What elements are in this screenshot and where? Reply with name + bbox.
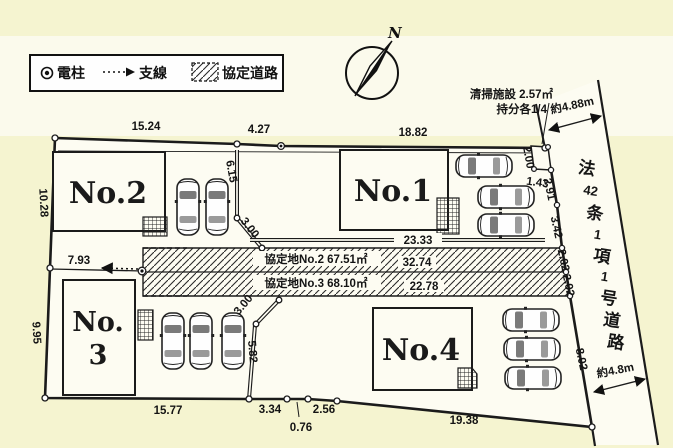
- lot-label-no4: No.4: [382, 333, 460, 368]
- legend: 電柱 支線 協定道路: [30, 55, 283, 91]
- dim-bottom-334: 3.34: [259, 404, 282, 416]
- lot-label-no3-top: No.: [72, 307, 124, 338]
- road-char: 42: [582, 182, 599, 199]
- dim-no1-south: 23.33: [404, 235, 433, 247]
- dim-left-upper: 10.28: [36, 188, 50, 218]
- lot-label-no2: No.2: [69, 176, 147, 211]
- porch-no3-icon: [138, 310, 153, 340]
- car-icon: [456, 153, 512, 179]
- dim-bottom-no4: 19.38: [450, 415, 479, 427]
- car-icon: [478, 212, 534, 238]
- car-icon: [504, 336, 560, 362]
- dim-bottom-076: 0.76: [290, 422, 312, 434]
- legend-pole-label: 電柱: [57, 65, 85, 81]
- legend-wire-label: 支線: [138, 65, 167, 81]
- porch-no4-icon: [458, 368, 477, 388]
- agreement-road-legend-icon: [192, 63, 218, 81]
- porch-no1-icon: [437, 198, 459, 234]
- dim-no4-east: 5.82: [245, 340, 259, 363]
- car-icon: [478, 184, 534, 210]
- car-icon: [175, 179, 201, 235]
- agreement-row2-label: 協定地No.3 68.10㎡: [265, 276, 368, 290]
- lot-label-no1: No.1: [354, 174, 432, 209]
- legend-agreement-road-label: 協定道路: [222, 65, 279, 81]
- car-icon: [505, 365, 561, 391]
- dim-top-mid: 4.27: [248, 124, 270, 136]
- site-plan-drawing: No.2 No.1 No. 3 No.4: [0, 0, 673, 448]
- dim-bottom-256: 2.56: [313, 404, 335, 416]
- north-label: N: [387, 24, 403, 42]
- agreement-row2-length: 22.78: [410, 281, 439, 293]
- agreement-row1-length: 32.74: [403, 257, 432, 269]
- dim-wire: 7.93: [68, 255, 90, 267]
- road-char: 法: [577, 157, 597, 179]
- cleaning-facility-note: 清掃施設 2.57㎡: [470, 87, 554, 101]
- road-char: 号: [599, 288, 619, 309]
- agreement-row1-label: 協定地No.2 67.51㎡: [265, 252, 368, 266]
- share-note: 持分各1/4: [497, 102, 548, 116]
- lot-label-no3-bottom: 3: [89, 340, 108, 371]
- car-icon: [204, 179, 230, 235]
- road-char: 道: [602, 309, 622, 331]
- dim-left-lower: 9.95: [29, 321, 42, 345]
- porch-no2-icon: [143, 217, 167, 236]
- dim-top-no1: 18.82: [399, 127, 428, 139]
- site-plan-page: No.2 No.1 No. 3 No.4: [0, 0, 673, 448]
- dim-bottom-no3: 15.77: [154, 405, 183, 417]
- car-icon: [160, 313, 186, 369]
- car-icon: [503, 307, 559, 333]
- car-icon: [220, 313, 246, 369]
- car-icon: [188, 313, 214, 369]
- dim-top-no2: 15.24: [132, 121, 161, 133]
